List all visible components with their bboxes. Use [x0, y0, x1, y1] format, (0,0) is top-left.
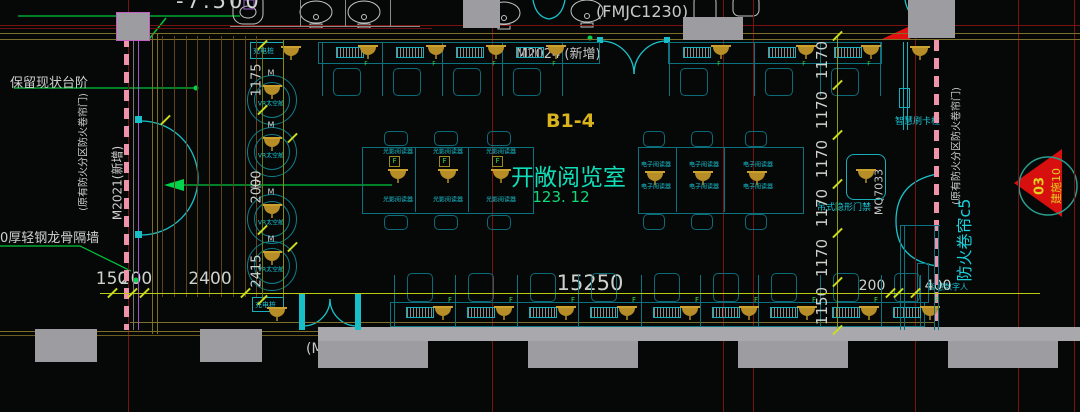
carrel-partition: [322, 42, 323, 96]
desk-hatch-box: [770, 307, 798, 318]
wall-niche: [917, 263, 929, 303]
dim-text: 1170: [813, 189, 831, 227]
callout-number: 03: [1033, 177, 1048, 195]
reading-lamp-icon: [262, 136, 282, 151]
lamp-tag: F: [717, 61, 720, 68]
desk-hatch-box: [406, 307, 434, 318]
lamp-part: [619, 308, 635, 316]
desk-hatch-box: [768, 47, 796, 58]
door-jamb: [299, 294, 305, 330]
reading-lamp-icon: [388, 168, 408, 183]
reading-lamp-icon: [680, 305, 700, 320]
chair: [745, 131, 767, 147]
desk-hatch-box: [396, 47, 424, 58]
wall-line: [152, 33, 153, 334]
restroom-partition: [390, 0, 391, 26]
stair-tread-line: [186, 36, 187, 297]
chair: [384, 215, 408, 230]
dim-text: 2000: [250, 170, 265, 203]
column: [908, 0, 955, 38]
reading-lamp-icon: [739, 305, 759, 320]
lamp-tag: F: [571, 296, 575, 304]
table-divider: [676, 147, 677, 212]
wall-section-line: [904, 225, 905, 330]
bottom-pier: [738, 341, 848, 368]
lamp-tag: F: [552, 61, 555, 68]
lamp-tag: F: [432, 61, 435, 68]
lamp-tag: F: [364, 61, 367, 68]
lamp-tag: F: [389, 156, 400, 167]
cad-floor-plan-canvas: -7.500 (FMJC1230) M2024 (新增) 保留现状台阶 0厚轻钢…: [0, 0, 1080, 412]
dim-text: 1170: [813, 140, 831, 178]
lamp-part: [488, 47, 504, 55]
door-jamb: [135, 116, 142, 123]
stair-tread-line: [209, 36, 210, 297]
lamp-tag: F: [874, 296, 878, 304]
lamp-part: [435, 308, 451, 316]
chair: [713, 273, 739, 302]
lamp-part: [912, 48, 928, 56]
lamp-part: [695, 173, 711, 181]
stair-tread-line: [162, 36, 163, 297]
reading-lamp-icon: [861, 44, 881, 59]
lamp-part: [360, 47, 376, 55]
fire-shutter-note-right: (原有防火分区防火卷帘门): [948, 87, 963, 205]
chair: [434, 215, 458, 230]
lamp-tag: F: [448, 296, 452, 304]
ebook-reader-label: 电子阅读器: [743, 182, 773, 191]
lamp-part: [922, 308, 938, 316]
lamp-tag: F: [802, 61, 805, 68]
lamp-part: [367, 55, 369, 59]
bottom-pier: [948, 341, 1058, 368]
lamp-part: [565, 316, 567, 320]
lamp-part: [500, 179, 502, 183]
optical-reader-label: 光影阅读器: [383, 195, 413, 204]
wall-line: [133, 36, 134, 330]
lamp-part: [390, 171, 406, 179]
lamp-part: [748, 316, 750, 320]
lamp-part: [558, 308, 574, 316]
wall-section-line: [900, 225, 901, 330]
bottom-pier: [528, 341, 638, 368]
elevation-text: -7.500: [176, 0, 262, 13]
room-code: B1-4: [546, 110, 595, 132]
lamp-part: [493, 171, 509, 179]
chair: [643, 214, 665, 230]
reading-lamp-icon: [546, 44, 566, 59]
chair: [654, 273, 680, 302]
chair: [487, 131, 511, 146]
lamp-part: [647, 173, 663, 181]
ebook-reader-label: 电子阅读器: [641, 160, 671, 169]
carrel-partition: [578, 275, 579, 327]
pod-tag: M: [268, 121, 275, 130]
lamp-part: [858, 171, 874, 179]
carrel-partition: [382, 42, 383, 96]
reading-lamp-icon: [556, 305, 576, 320]
restroom-partition: [345, 0, 346, 26]
table-divider: [724, 147, 725, 212]
lamp-part: [868, 316, 870, 320]
lamp-part: [428, 47, 444, 55]
chair: [831, 68, 859, 96]
fire-curtain-label: 防火卷帘c5: [951, 199, 975, 282]
lamp-part: [264, 253, 280, 261]
lamp-part: [283, 48, 299, 56]
reading-lamp-icon: [281, 45, 301, 60]
m2021-door-label: M2021(新增): [109, 146, 126, 220]
wall-line: [157, 33, 158, 334]
card-post-line: [903, 42, 904, 130]
lamp-tag: F: [492, 156, 503, 167]
reading-lamp-icon: [433, 305, 453, 320]
lamp-part: [929, 316, 931, 320]
lamp-part: [713, 47, 729, 55]
reading-lamp-icon: [486, 44, 506, 59]
reading-lamp-icon: [262, 84, 282, 99]
lamp-part: [447, 179, 449, 183]
lamp-part: [264, 139, 280, 147]
lamp-part: [798, 47, 814, 55]
lamp-part: [290, 56, 292, 60]
keep-steps-label: 保留现状台阶: [10, 72, 88, 91]
wall-section-line: [934, 225, 935, 330]
lamp-part: [863, 47, 879, 55]
lamp-part: [626, 316, 628, 320]
lamp-tag: F: [632, 296, 636, 304]
lamp-part: [440, 171, 456, 179]
bottom-pier: [318, 341, 428, 368]
optical-reader-label: 光影阅读器: [383, 147, 413, 156]
table-divider: [415, 147, 416, 212]
stair-tread-line: [221, 36, 222, 297]
lamp-tag: F: [695, 296, 699, 304]
lamp-part: [276, 317, 278, 321]
desk-hatch-box: [683, 47, 711, 58]
lamp-part: [503, 316, 505, 320]
lamp-part: [870, 55, 872, 59]
desk-hatch-box: [529, 307, 557, 318]
reading-lamp-icon: [920, 305, 940, 320]
stair-tread-line: [233, 36, 234, 297]
lamp-part: [496, 308, 512, 316]
room-area: 123. 12: [532, 188, 589, 206]
table-divider: [468, 147, 469, 212]
lamp-part: [548, 47, 564, 55]
carrel-partition: [754, 42, 755, 96]
lamp-tag: F: [867, 61, 870, 68]
lamp-part: [805, 55, 807, 59]
column: [116, 12, 150, 41]
chair: [333, 68, 361, 96]
fmjc-door-label: (FMJC1230): [596, 2, 688, 21]
fire-shutter-note-left: (原有防火分区防火卷帘门): [75, 93, 90, 211]
grid-line-vertical: [915, 0, 916, 412]
lamp-part: [264, 206, 280, 214]
column: [683, 17, 743, 40]
grid-line-horizontal: [0, 28, 432, 29]
stair-tread-line: [197, 36, 198, 297]
ebook-reader-label: 电子阅读器: [641, 182, 671, 191]
chair: [393, 68, 421, 96]
desk-hatch-box: [653, 307, 681, 318]
chair: [468, 273, 494, 302]
purple-partition-line: [138, 36, 139, 330]
desk-hatch-box: [456, 47, 484, 58]
reading-lamp-icon: [856, 168, 876, 183]
lamp-part: [495, 55, 497, 59]
optical-reader-label: 光影阅读器: [486, 195, 516, 204]
lamp-part: [397, 179, 399, 183]
lamp-part: [749, 173, 765, 181]
electrical-line: [283, 40, 284, 298]
optical-reader-label: 光影阅读器: [433, 195, 463, 204]
chair: [691, 214, 713, 230]
chair: [643, 131, 665, 147]
optical-reader-label: 光影阅读器: [486, 147, 516, 156]
desk-hatch-box: [516, 47, 544, 58]
carrel-partition: [881, 275, 882, 327]
reading-lamp-icon: [438, 168, 458, 183]
reading-lamp-icon: [617, 305, 637, 320]
ebook-reader-label: 电子阅读器: [689, 160, 719, 169]
chair: [384, 131, 408, 146]
chair: [513, 68, 541, 96]
pod-tag: M: [268, 69, 275, 78]
carrel-partition: [641, 275, 642, 327]
lamp-part: [919, 56, 921, 60]
lamp-tag: F: [754, 296, 758, 304]
chair: [530, 273, 556, 302]
reading-lamp-icon: [358, 44, 378, 59]
dim-text: 1175: [250, 63, 265, 96]
stair-tread-line: [174, 36, 175, 297]
reading-lamp-icon: [859, 305, 879, 320]
reading-lamp-icon: [494, 305, 514, 320]
carrel-partition: [700, 275, 701, 327]
dim-2400: 2400: [188, 269, 231, 289]
bottom-pier: [200, 329, 262, 362]
lamp-tag: F: [492, 61, 495, 68]
ebook-reader-label: 电子阅读器: [743, 160, 773, 169]
pod-tag: M: [268, 235, 275, 244]
desk-hatch-box: [467, 307, 495, 318]
dim-text: 1170: [813, 239, 831, 277]
lamp-part: [741, 308, 757, 316]
lamp-part: [269, 309, 285, 317]
restroom-partition: [300, 0, 301, 26]
restroom-wall: [230, 26, 420, 27]
stair-tread-line: [245, 36, 246, 297]
reading-lamp-icon: [491, 168, 511, 183]
carrel-partition: [517, 275, 518, 327]
reading-lamp-icon: [262, 250, 282, 265]
door-jamb: [135, 231, 142, 238]
chair: [591, 273, 617, 302]
column: [463, 0, 500, 28]
lamp-tag: F: [509, 296, 513, 304]
bottom-pier: [35, 329, 97, 362]
door-jamb: [355, 294, 361, 330]
dim-text: 1170: [813, 91, 831, 129]
reading-lamp-icon: [426, 44, 446, 59]
optical-reader-label: 光影阅读器: [433, 147, 463, 156]
bottom-wall-band: [318, 327, 1080, 341]
chair: [487, 215, 511, 230]
chair: [745, 214, 767, 230]
desk-hatch-box: [893, 307, 921, 318]
carrel-partition: [669, 42, 670, 96]
chair: [771, 273, 797, 302]
lamp-part: [264, 87, 280, 95]
lamp-part: [720, 55, 722, 59]
chair: [434, 131, 458, 146]
chair: [453, 68, 481, 96]
chair: [407, 273, 433, 302]
card-post-box: [899, 88, 910, 108]
lamp-part: [682, 308, 698, 316]
desk-hatch-box: [590, 307, 618, 318]
lamp-part: [555, 55, 557, 59]
grid-line-vertical: [1074, 0, 1075, 412]
desk-hatch-box: [712, 307, 740, 318]
desk-hatch-box: [834, 47, 862, 58]
lamp-part: [806, 316, 808, 320]
ebook-reader-label: 电子阅读器: [689, 182, 719, 191]
chair: [765, 68, 793, 96]
lamp-part: [689, 316, 691, 320]
carrel-partition: [455, 275, 456, 327]
dim-text: 2415: [250, 254, 265, 287]
lamp-part: [865, 179, 867, 183]
callout-sheet: 建施10: [1048, 168, 1064, 204]
lamp-part: [435, 55, 437, 59]
chair: [680, 68, 708, 96]
lamp-part: [442, 316, 444, 320]
partition-wall-label: 0厚轻钢龙骨隔墙: [0, 227, 99, 246]
wall-section-line: [900, 225, 940, 226]
fire-shutter-line-left: [124, 36, 129, 330]
wall-section-line: [938, 225, 939, 330]
lamp-part: [861, 308, 877, 316]
lamp-tag: F: [439, 156, 450, 167]
reading-lamp-icon: [267, 306, 287, 321]
reading-lamp-icon: [711, 44, 731, 59]
card-post-line: [907, 42, 908, 130]
carrel-partition: [394, 275, 395, 327]
dim-text: 1170: [813, 41, 831, 79]
reading-lamp-icon: [262, 203, 282, 218]
pod-tag: M: [268, 188, 275, 197]
chair: [691, 131, 713, 147]
reading-lamp-icon: [910, 45, 930, 60]
